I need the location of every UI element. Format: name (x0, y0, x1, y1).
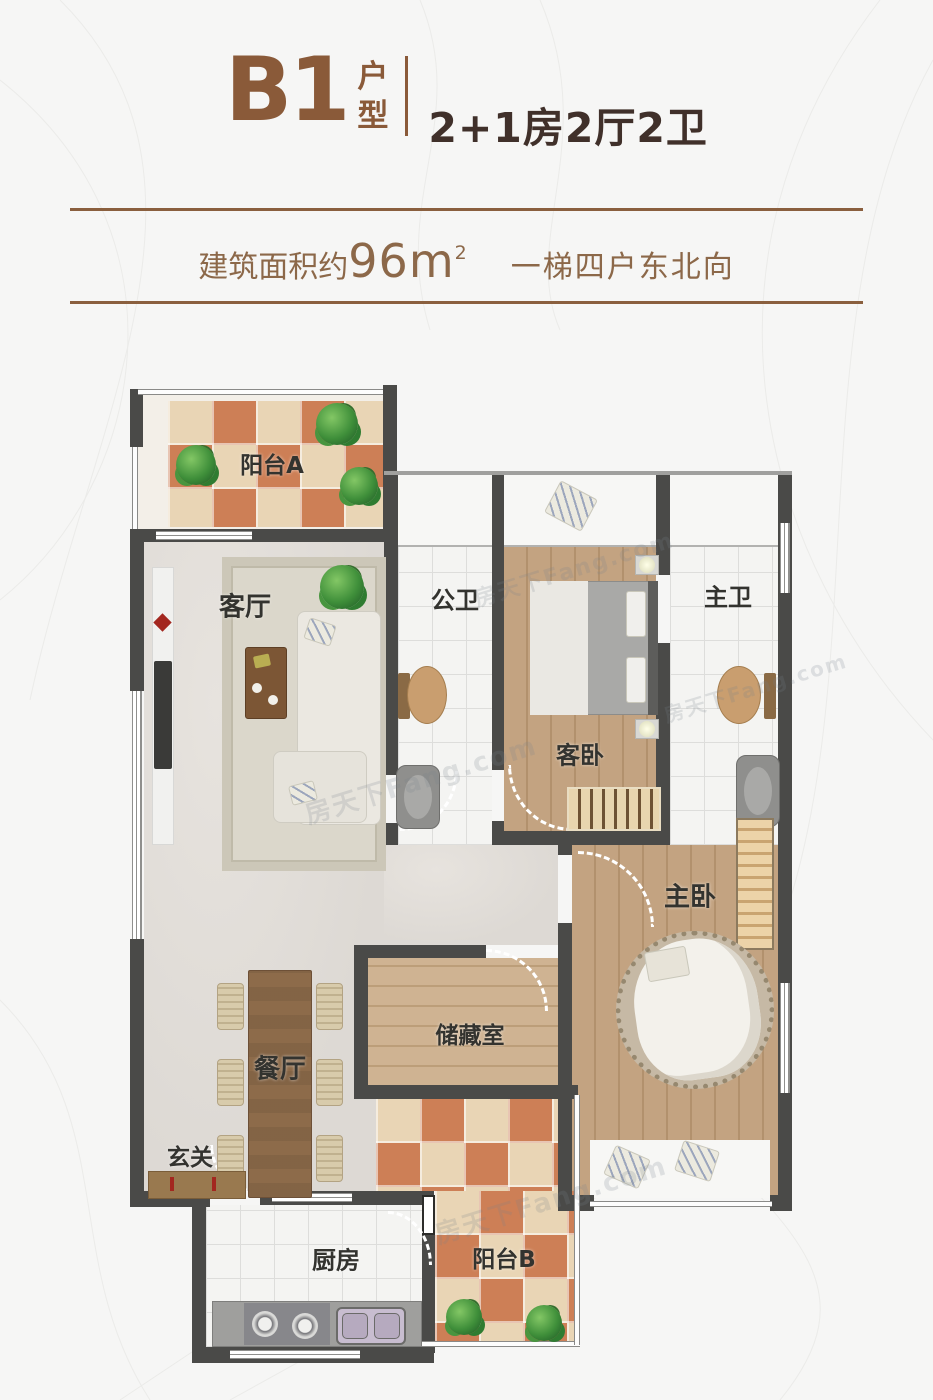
area-prefix: 建筑面积约 (198, 242, 348, 286)
coffee-cup-1 (252, 683, 262, 693)
kitchen-sink-basin-1 (342, 1313, 368, 1339)
balcony-b-plant-2 (526, 1305, 562, 1341)
wall-balcony-a-corner (130, 389, 143, 447)
coffee-cup-2 (268, 695, 278, 705)
kitchen-sink-basin-2 (374, 1313, 400, 1339)
unit-code: B1 (225, 48, 347, 132)
label-balcony-a: 阳台A (240, 446, 304, 480)
guest-bed-headboard (648, 581, 658, 715)
header-divider (405, 56, 408, 136)
guest-bed-quilt (530, 581, 588, 715)
wall-west-upper (130, 529, 144, 691)
wall-storage-west (354, 945, 368, 1099)
guest-lamp-2 (639, 721, 655, 737)
tv (154, 661, 172, 769)
wall-master-west-stub (558, 845, 572, 855)
label-master-bath: 主卫 (704, 578, 752, 613)
wall-kitchen-west (192, 1191, 206, 1363)
wall-bath-guest-divider (492, 475, 504, 770)
label-entry: 玄关 (167, 1138, 213, 1172)
master-bedroom-east-window (780, 983, 790, 1093)
dining-chair-6 (316, 1135, 343, 1182)
dining-chair-5 (316, 1059, 343, 1106)
area-info-line: 建筑面积约96m2一梯四户东北向 (0, 234, 933, 288)
wall-public-bath-west-stub (384, 823, 398, 845)
shoe-cabinet-handle-2 (212, 1177, 216, 1191)
wall-public-bath-west (384, 475, 398, 775)
stove-burner-2 (292, 1313, 318, 1339)
balcony-a-top-rail (138, 389, 388, 395)
layout-description: 2+1房2厅2卫 (428, 94, 707, 154)
balcony-a-plant-2 (316, 403, 358, 445)
wall-master-west (558, 923, 572, 1208)
wall-bath-guest-divider-stub (492, 821, 504, 845)
floorplan-page: B1 户型 2+1房2厅2卫 建筑面积约96m2一梯四户东北向 (0, 0, 933, 1400)
balcony-a-plant-1 (176, 445, 216, 485)
label-living-room: 客厅 (219, 587, 271, 624)
living-west-window (132, 691, 142, 939)
balcony-b-east-rail (574, 1095, 580, 1345)
balcony-a-left-rail (132, 447, 138, 535)
label-guest-bedroom: 客卧 (556, 736, 604, 771)
area-superscript: 2 (455, 242, 467, 264)
rule-bottom (70, 301, 863, 304)
wall-storage-south (354, 1085, 578, 1099)
balcony-a-sliding-door (156, 531, 252, 540)
rule-top (70, 208, 863, 211)
balcony-a-plant-3 (340, 467, 378, 505)
master-bay-rail (590, 1201, 772, 1207)
master-bath-sink-basin (744, 767, 772, 815)
stove-burner-1 (252, 1311, 278, 1337)
living-plant (320, 565, 364, 609)
public-toilet-bowl (407, 666, 447, 724)
entry-shoe-cabinet (148, 1171, 246, 1199)
label-storage-room: 储藏室 (436, 1016, 505, 1050)
label-master-bedroom: 主卧 (664, 877, 716, 914)
master-bath-east-window (780, 523, 790, 593)
kitchen-south-window (230, 1350, 360, 1359)
dining-chair-1 (217, 983, 244, 1030)
corridor-floor (384, 845, 558, 945)
wall-west-lower (130, 939, 144, 1197)
wall-guest-south (498, 831, 670, 845)
label-kitchen: 厨房 (312, 1241, 360, 1276)
guest-storage-bench (567, 787, 661, 831)
dining-chair-2 (217, 1059, 244, 1106)
area-value: 96m (348, 234, 454, 288)
guest-bed-pillow-1 (626, 591, 646, 637)
wall-master-south-right (770, 1195, 792, 1211)
balcony-b-plant-1 (446, 1299, 482, 1335)
master-wardrobe (736, 818, 774, 950)
balcony-b-floor-upper (376, 1099, 558, 1191)
guest-bed-pillow-2 (626, 657, 646, 703)
dining-chair-4 (316, 983, 343, 1030)
unit-type-label: 户型 (357, 58, 391, 136)
wall-storage-north (354, 945, 486, 958)
label-balcony-b: 阳台B (472, 1240, 536, 1274)
shoe-cabinet-handle-1 (170, 1177, 174, 1191)
orientation-text: 一梯四户东北向 (511, 242, 735, 286)
plan-header: B1 户型 2+1房2厅2卫 (0, 48, 933, 154)
label-dining-room: 餐厅 (254, 1049, 306, 1086)
north-bay-outer-line (384, 471, 792, 475)
